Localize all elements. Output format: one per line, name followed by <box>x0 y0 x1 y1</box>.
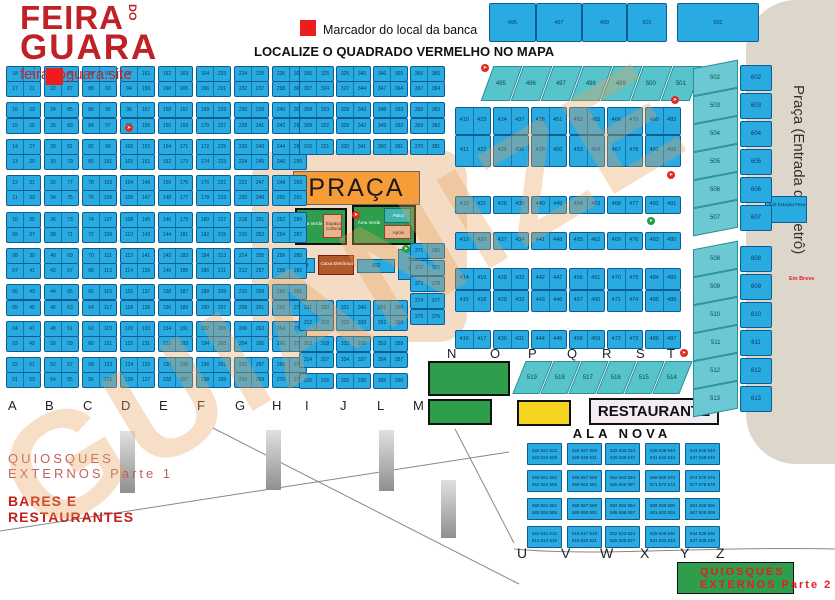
booth-cell[interactable]: 240 <box>273 103 289 117</box>
booth-cell[interactable]: 130 <box>159 358 175 372</box>
booth-cell[interactable]: 332 <box>337 316 353 330</box>
booth-cell[interactable]: 129 <box>137 358 154 372</box>
booth-cell[interactable]: 225 <box>213 140 230 154</box>
booth-cell[interactable]: 79 <box>61 155 78 169</box>
booth-pair[interactable]: 428433 <box>493 268 529 290</box>
booth-cell[interactable]: 73 <box>61 213 78 227</box>
booth-cell[interactable]: 443 <box>532 291 549 311</box>
booth-pair[interactable]: 152173 <box>158 154 193 170</box>
booth-cell[interactable]: 33 <box>23 191 40 205</box>
booth-pair[interactable]: 58123 <box>82 357 117 373</box>
booth-cell[interactable]: 221 <box>213 176 230 190</box>
booth-cell[interactable]: 334 <box>337 353 353 367</box>
booth-cell[interactable]: 379 <box>427 261 444 275</box>
booth-cell[interactable]: 469 <box>608 233 625 249</box>
booth-cell[interactable]: 25 <box>23 119 40 133</box>
booth-cell[interactable]: 103 <box>99 176 116 190</box>
booth-cell[interactable]: 253 <box>251 228 268 242</box>
booth-pair[interactable]: 62119 <box>82 321 117 337</box>
booth-cell[interactable]: 257 <box>251 264 268 278</box>
booth-cell[interactable]: 17 <box>7 82 23 96</box>
booth-cell[interactable]: 345 <box>353 67 370 81</box>
ala-nova-booth[interactable]: 526 527 528529 530 531 <box>567 443 602 465</box>
booth-pair[interactable]: 128197 <box>158 372 193 388</box>
booth-pair[interactable]: 168229 <box>196 102 231 118</box>
booth-cell[interactable]: 372 <box>411 261 427 275</box>
booth-cell[interactable]: 361 <box>390 140 407 154</box>
booth-cell[interactable]: 145 <box>137 213 154 227</box>
booth-pair[interactable]: 188209 <box>196 284 231 300</box>
booth-cell[interactable]: 331 <box>337 301 353 315</box>
booth-cell[interactable]: 364 <box>390 82 407 96</box>
booth-cell[interactable]: 476 <box>625 233 643 249</box>
booth-cell[interactable]: 160 <box>159 82 175 96</box>
booth-pair[interactable]: 351360 <box>373 300 408 316</box>
metro-booth[interactable]: 604 <box>740 121 772 147</box>
booth-pair[interactable]: 3673 <box>44 212 79 228</box>
ala-nova-booth[interactable]: 592 593 594595 596 597 <box>605 498 640 520</box>
booth-pair[interactable]: 354357 <box>373 352 408 368</box>
booth-cell[interactable]: 310 <box>300 140 316 154</box>
booth-cell[interactable]: 415 <box>456 291 473 311</box>
booth-pair[interactable]: 164233 <box>196 66 231 82</box>
metro-booth[interactable]: 606 <box>740 177 772 203</box>
booth-pair[interactable]: 1623 <box>6 102 41 118</box>
booth-pair[interactable]: 0447 <box>6 321 41 337</box>
booth-pair[interactable]: 1721 <box>6 81 41 97</box>
booth-cell[interactable]: 306 <box>300 67 316 81</box>
booth-cell[interactable]: 42 <box>45 264 61 278</box>
booth-cell[interactable]: 53 <box>23 373 40 387</box>
booth-cell[interactable]: 212 <box>235 264 251 278</box>
booth-cell[interactable]: 215 <box>213 228 230 242</box>
booth-cell[interactable]: 486 <box>646 331 663 348</box>
top-booth[interactable]: 499 <box>582 3 627 42</box>
booth-cell[interactable]: 327 <box>337 82 353 96</box>
booth-cell[interactable]: 75 <box>61 191 78 205</box>
booth-pair[interactable]: 246295 <box>272 154 307 170</box>
booth-cell[interactable]: 238 <box>273 82 289 96</box>
booth-pair[interactable]: 124129 <box>120 357 155 373</box>
booth-pair[interactable]: 148177 <box>158 190 193 206</box>
booth-cell[interactable]: 102 <box>121 155 137 169</box>
booth-pair[interactable]: 2881 <box>44 139 79 155</box>
booth-pair[interactable]: 438451 <box>531 107 567 135</box>
booth-cell[interactable]: 421 <box>473 197 491 213</box>
booth-cell[interactable]: 325 <box>316 67 333 81</box>
booth-pair[interactable]: 456461 <box>569 268 605 290</box>
booth-cell[interactable]: 244 <box>273 140 289 154</box>
booth-pair[interactable]: 100153 <box>120 139 155 155</box>
booth-pair[interactable]: 326345 <box>336 66 371 82</box>
booth-cell[interactable]: 37 <box>23 228 40 242</box>
booth-pair[interactable]: 0153 <box>6 372 41 388</box>
booth-cell[interactable]: 67 <box>61 264 78 278</box>
booth-cell[interactable]: 02 <box>7 358 23 372</box>
booth-cell[interactable]: 117 <box>99 301 116 315</box>
booth-cell[interactable]: 04 <box>7 322 23 336</box>
booth-cell[interactable]: 08 <box>7 249 23 263</box>
booth-cell[interactable]: 283 <box>289 264 306 278</box>
booth-cell[interactable]: 434 <box>511 233 529 249</box>
booth-cell[interactable]: 230 <box>235 103 251 117</box>
booth-pair[interactable]: 116137 <box>120 284 155 300</box>
booth-cell[interactable]: 478 <box>625 136 643 166</box>
booth-pair[interactable]: 122131 <box>120 336 155 352</box>
booth-cell[interactable]: 339 <box>353 316 370 330</box>
booth-cell[interactable]: 383 <box>427 103 444 117</box>
booth-cell[interactable]: 470 <box>608 269 625 289</box>
booth-cell[interactable]: 62 <box>83 322 99 336</box>
booth-cell[interactable]: 217 <box>213 213 230 227</box>
ala-nova-booth[interactable]: 628 629 630631 632 633 <box>645 526 680 548</box>
booth-cell[interactable]: 267 <box>251 358 268 372</box>
booth-cell[interactable]: 29 <box>23 155 40 169</box>
booth-cell[interactable]: 175 <box>175 176 192 190</box>
booth-cell[interactable]: 234 <box>235 67 251 81</box>
booth-pair[interactable]: 484489 <box>645 268 681 290</box>
booth-cell[interactable]: 352 <box>374 316 390 330</box>
booth-cell[interactable]: 202 <box>235 358 251 372</box>
booth-cell[interactable]: 454 <box>570 197 587 213</box>
booth-cell[interactable]: 356 <box>390 374 407 388</box>
booth-pair[interactable]: 310321 <box>299 139 334 155</box>
booth-pair[interactable]: 172225 <box>196 139 231 155</box>
booth-cell[interactable]: 348 <box>374 103 390 117</box>
booth-cell[interactable]: 184 <box>197 249 213 263</box>
booth-cell[interactable]: 329 <box>337 119 353 133</box>
booth-cell[interactable]: 228 <box>235 119 251 133</box>
booth-cell[interactable]: 440 <box>532 197 549 213</box>
booth-cell[interactable]: 343 <box>353 103 370 117</box>
booth-cell[interactable]: 95 <box>99 103 116 117</box>
booth-cell[interactable]: 413 <box>456 233 473 249</box>
ala-nova-booth[interactable]: 544 545 546547 548 549 <box>685 443 720 465</box>
booth-cell[interactable]: 125 <box>99 373 116 387</box>
booth-pair[interactable]: 256285 <box>272 248 307 264</box>
booth-pair[interactable]: 198199 <box>196 372 231 388</box>
booth-cell[interactable]: 142 <box>159 249 175 263</box>
booth-cell[interactable]: 252 <box>273 213 289 227</box>
metro-booth[interactable]: 610 <box>740 302 772 328</box>
booth-pair[interactable]: 190207 <box>196 300 231 316</box>
booth-pair[interactable]: 369382 <box>410 118 445 134</box>
booth-cell[interactable]: 335 <box>337 374 353 388</box>
booth-cell[interactable]: 462 <box>587 233 605 249</box>
booth-cell[interactable]: 426 <box>494 197 511 213</box>
booth-cell[interactable]: 143 <box>137 228 154 242</box>
booth-cell[interactable]: 326 <box>337 67 353 81</box>
booth-cell[interactable]: 266 <box>273 337 289 351</box>
booth-pair[interactable]: 254287 <box>272 227 307 243</box>
ala-nova-booth[interactable]: 580 581 582583 584 585 <box>527 498 562 520</box>
booth-cell[interactable]: 219 <box>213 191 230 205</box>
booth-cell[interactable]: 43 <box>23 285 40 299</box>
booth-pair[interactable]: 2683 <box>44 118 79 134</box>
booth-pair[interactable]: 216253 <box>234 227 269 243</box>
booth-cell[interactable]: 366 <box>411 67 427 81</box>
booth-cell[interactable]: 289 <box>289 213 306 227</box>
booth-pair[interactable]: 333338 <box>336 336 371 352</box>
booth-pair[interactable]: 72109 <box>82 227 117 243</box>
booth-cell[interactable]: 358 <box>390 337 407 351</box>
booth-cell[interactable]: 21 <box>23 82 40 96</box>
booth-pair[interactable]: 60121 <box>82 336 117 352</box>
booth-cell[interactable]: 173 <box>175 155 192 169</box>
booth-cell[interactable]: 354 <box>374 353 390 367</box>
booth-cell[interactable]: 452 <box>570 108 587 134</box>
booth-cell[interactable]: 246 <box>273 155 289 169</box>
booth-cell[interactable]: 232 <box>235 82 251 96</box>
booth-pair[interactable]: 415418 <box>455 290 491 312</box>
top-booth[interactable]: 495 <box>489 3 536 42</box>
booth-pair[interactable]: 146179 <box>158 212 193 228</box>
booth-cell[interactable]: 197 <box>175 373 192 387</box>
booth-cell[interactable]: 63 <box>61 301 78 315</box>
booth-cell[interactable]: 116 <box>121 285 137 299</box>
booth-cell[interactable]: 157 <box>137 103 154 117</box>
booth-cell[interactable]: 378 <box>427 277 444 291</box>
booth-pair[interactable]: 480493 <box>645 107 681 135</box>
booth-cell[interactable]: 428 <box>494 269 511 289</box>
booth-cell[interactable]: 61 <box>61 322 78 336</box>
booth-cell[interactable]: 55 <box>61 373 78 387</box>
booth-cell[interactable]: 429 <box>494 291 511 311</box>
booth-cell[interactable]: 57 <box>61 358 78 372</box>
booth-pair[interactable]: 335336 <box>336 373 371 389</box>
booth-pair[interactable]: 0741 <box>6 263 41 279</box>
booth-cell[interactable]: 136 <box>159 301 175 315</box>
booth-pair[interactable]: 455462 <box>569 232 605 250</box>
booth-cell[interactable]: 180 <box>197 213 213 227</box>
booth-cell[interactable]: 34 <box>45 191 61 205</box>
booth-cell[interactable]: 270 <box>273 373 289 387</box>
booth-cell[interactable]: 475 <box>625 269 643 289</box>
booth-cell[interactable]: 226 <box>235 140 251 154</box>
booth-cell[interactable]: 09 <box>7 228 23 242</box>
booth-pair[interactable]: 5257 <box>44 357 79 373</box>
booth-cell[interactable]: 30 <box>45 155 61 169</box>
booth-cell[interactable]: 323 <box>316 103 333 117</box>
booth-pair[interactable]: 468477 <box>607 196 643 214</box>
booth-pair[interactable]: 3475 <box>44 190 79 206</box>
booth-cell[interactable]: 93 <box>99 82 116 96</box>
ala-nova-booth[interactable]: 538 539 540541 542 543 <box>645 443 680 465</box>
booth-pair[interactable]: 4069 <box>44 248 79 264</box>
booth-cell[interactable]: 82 <box>83 140 99 154</box>
booth-cell[interactable]: 205 <box>213 322 230 336</box>
booth-cell[interactable]: 149 <box>137 176 154 190</box>
booth-cell[interactable]: 106 <box>121 191 137 205</box>
booth-cell[interactable]: 263 <box>251 322 268 336</box>
booth-cell[interactable]: 224 <box>235 155 251 169</box>
booth-cell[interactable]: 342 <box>353 119 370 133</box>
booth-cell[interactable]: 122 <box>121 337 137 351</box>
booth-pair[interactable]: 1525 <box>6 118 41 134</box>
booth-cell[interactable]: 385 <box>427 67 444 81</box>
booth-cell[interactable]: 97 <box>99 119 116 133</box>
booth-cell[interactable]: 320 <box>316 301 333 315</box>
booth-pair[interactable]: 441448 <box>531 232 567 250</box>
booth-cell[interactable]: 222 <box>235 176 251 190</box>
booth-cell[interactable]: 243 <box>251 140 268 154</box>
booth-cell[interactable]: 493 <box>663 108 681 134</box>
booth-cell[interactable]: 128 <box>159 373 175 387</box>
booth-pair[interactable]: 102151 <box>120 154 155 170</box>
booth-cell[interactable]: 435 <box>511 197 529 213</box>
booth-cell[interactable]: 442 <box>532 269 549 289</box>
booth-cell[interactable]: 471 <box>608 291 625 311</box>
booth-cell[interactable]: 35 <box>23 213 40 227</box>
booth-cell[interactable]: 324 <box>316 82 333 96</box>
booth-cell[interactable]: 209 <box>213 285 230 299</box>
booth-cell[interactable]: 427 <box>494 233 511 249</box>
booth-pair[interactable]: 120133 <box>120 321 155 337</box>
booth-cell[interactable]: 268 <box>273 358 289 372</box>
booth-pair[interactable]: 196201 <box>196 357 231 373</box>
booth-cell[interactable]: 420 <box>473 233 491 249</box>
booth-cell[interactable]: 86 <box>83 103 99 117</box>
ala-nova-booth[interactable]: 574 575 576577 578 579 <box>685 470 720 492</box>
booth-pair[interactable]: 413420 <box>455 232 491 250</box>
ala-nova-booth[interactable]: 604 605 606607 608 609 <box>685 498 720 520</box>
booth-cell[interactable]: 146 <box>159 213 175 227</box>
booth-cell[interactable]: 26 <box>45 119 61 133</box>
booth-cell[interactable]: 365 <box>390 67 407 81</box>
booth-pair[interactable]: 3871 <box>44 227 79 243</box>
booth-cell[interactable]: 468 <box>608 197 625 213</box>
booth-cell[interactable]: 203 <box>213 337 230 351</box>
booth-pair[interactable]: 350361 <box>373 139 408 155</box>
booth-cell[interactable]: 196 <box>197 358 213 372</box>
booth-cell[interactable]: 464 <box>587 136 605 166</box>
booth-cell[interactable]: 171 <box>175 140 192 154</box>
top-booth[interactable]: 497 <box>536 3 582 42</box>
booth-pair[interactable]: 252289 <box>272 212 307 228</box>
booth-pair[interactable]: 366385 <box>410 66 445 82</box>
booth-pair[interactable]: 194203 <box>196 336 231 352</box>
booth-pair[interactable]: 8695 <box>82 102 117 118</box>
booth-cell[interactable]: 152 <box>159 155 175 169</box>
booth-cell[interactable]: 204 <box>235 337 251 351</box>
booth-pair[interactable]: 230239 <box>234 102 269 118</box>
booth-pair[interactable]: 226243 <box>234 139 269 155</box>
booth-pair[interactable]: 454463 <box>569 196 605 214</box>
booth-cell[interactable]: 03 <box>7 337 23 351</box>
booth-cell[interactable]: 156 <box>159 119 175 133</box>
booth-pair[interactable]: 334337 <box>336 352 371 368</box>
booth-cell[interactable]: 210 <box>235 285 251 299</box>
booth-pair[interactable]: 144181 <box>158 227 193 243</box>
booth-cell[interactable]: 465 <box>587 108 605 134</box>
booth-pair[interactable]: 481492 <box>645 135 681 167</box>
booth-cell[interactable]: 363 <box>390 103 407 117</box>
booth-pair[interactable]: 186211 <box>196 263 231 279</box>
booth-pair[interactable]: 248293 <box>272 175 307 191</box>
booth-pair[interactable]: 0251 <box>6 357 41 373</box>
booth-cell[interactable]: 140 <box>159 264 175 278</box>
booth-cell[interactable]: 491 <box>663 197 681 213</box>
booth-pair[interactable]: 483490 <box>645 232 681 250</box>
booth-pair[interactable]: 8299 <box>82 139 117 155</box>
booth-pair[interactable]: 412421 <box>455 196 491 214</box>
ala-nova-booth[interactable]: 550 551 552553 554 555 <box>527 470 562 492</box>
booth-cell[interactable]: 251 <box>251 213 268 227</box>
ala-nova-booth[interactable]: 520 521 522523 524 525 <box>527 443 562 465</box>
booth-cell[interactable]: 330 <box>337 140 353 154</box>
booth-pair[interactable]: 208261 <box>234 300 269 316</box>
booth-cell[interactable]: 316 <box>316 374 333 388</box>
booth-cell[interactable]: 172 <box>197 140 213 154</box>
booth-cell[interactable]: 10 <box>7 213 23 227</box>
booth-cell[interactable]: 126 <box>121 373 137 387</box>
booth-cell[interactable]: 355 <box>374 374 390 388</box>
booth-cell[interactable]: 245 <box>251 155 268 169</box>
booth-pair[interactable]: 416417 <box>455 330 491 349</box>
booth-cell[interactable]: 319 <box>316 316 333 330</box>
booth-cell[interactable]: 182 <box>197 228 213 242</box>
booth-cell[interactable]: 480 <box>646 108 663 134</box>
booth-cell[interactable]: 349 <box>374 119 390 133</box>
booth-cell[interactable]: 432 <box>511 291 529 311</box>
booth-cell[interactable]: 108 <box>121 213 137 227</box>
booth-cell[interactable]: 368 <box>411 103 427 117</box>
booth-pair[interactable]: 471474 <box>607 290 643 312</box>
booth-cell[interactable]: 431 <box>511 331 529 348</box>
booth-cell[interactable]: 94 <box>121 82 137 96</box>
booth-cell[interactable]: 247 <box>251 176 268 190</box>
booth-cell[interactable]: 231 <box>213 82 230 96</box>
booth-cell[interactable]: 104 <box>121 176 137 190</box>
booth-pair[interactable]: 192205 <box>196 321 231 337</box>
booth-pair[interactable]: 453464 <box>569 135 605 167</box>
booth-cell[interactable]: 416 <box>456 331 473 348</box>
booth-cell[interactable]: 14 <box>7 140 23 154</box>
booth-cell[interactable]: 139 <box>137 264 154 278</box>
booth-pair[interactable]: 442447 <box>531 268 567 290</box>
booth-pair[interactable]: 1329 <box>6 154 41 170</box>
booth-cell[interactable]: 27 <box>23 140 40 154</box>
booth-cell[interactable]: 433 <box>511 269 529 289</box>
booth-pair[interactable]: 1133 <box>6 190 41 206</box>
ala-nova-booth[interactable]: 562 563 564565 566 567 <box>605 470 640 492</box>
booth-cell[interactable]: 134 <box>159 322 175 336</box>
booth-cell[interactable]: 350 <box>374 140 390 154</box>
booth-pair[interactable]: 0545 <box>6 300 41 316</box>
booth-pair[interactable]: 126127 <box>120 372 155 388</box>
metro-booth[interactable]: 611 <box>740 330 772 356</box>
booth-cell[interactable]: 78 <box>83 176 99 190</box>
booth-cell[interactable]: 474 <box>625 291 643 311</box>
booth-cell[interactable]: 259 <box>251 285 268 299</box>
booth-pair[interactable]: 375376 <box>410 309 445 325</box>
booth-cell[interactable]: 60 <box>83 337 99 351</box>
booth-cell[interactable]: 187 <box>175 285 192 299</box>
booth-pair[interactable]: 202267 <box>234 357 269 373</box>
booth-cell[interactable]: 248 <box>273 176 289 190</box>
booth-cell[interactable]: 24 <box>45 103 61 117</box>
booth-pair[interactable]: 74107 <box>82 212 117 228</box>
metro-booth[interactable]: 607 <box>740 205 772 231</box>
booth-pair[interactable]: 327344 <box>336 81 371 97</box>
booth-cell[interactable]: 111 <box>99 249 116 263</box>
booth-pair[interactable]: 427434 <box>493 232 529 250</box>
booth-cell[interactable]: 287 <box>289 228 306 242</box>
booth-cell[interactable]: 227 <box>213 119 230 133</box>
booth-cell[interactable]: 437 <box>511 108 529 134</box>
booth-cell[interactable]: 148 <box>159 191 175 205</box>
booth-cell[interactable]: 150 <box>159 176 175 190</box>
